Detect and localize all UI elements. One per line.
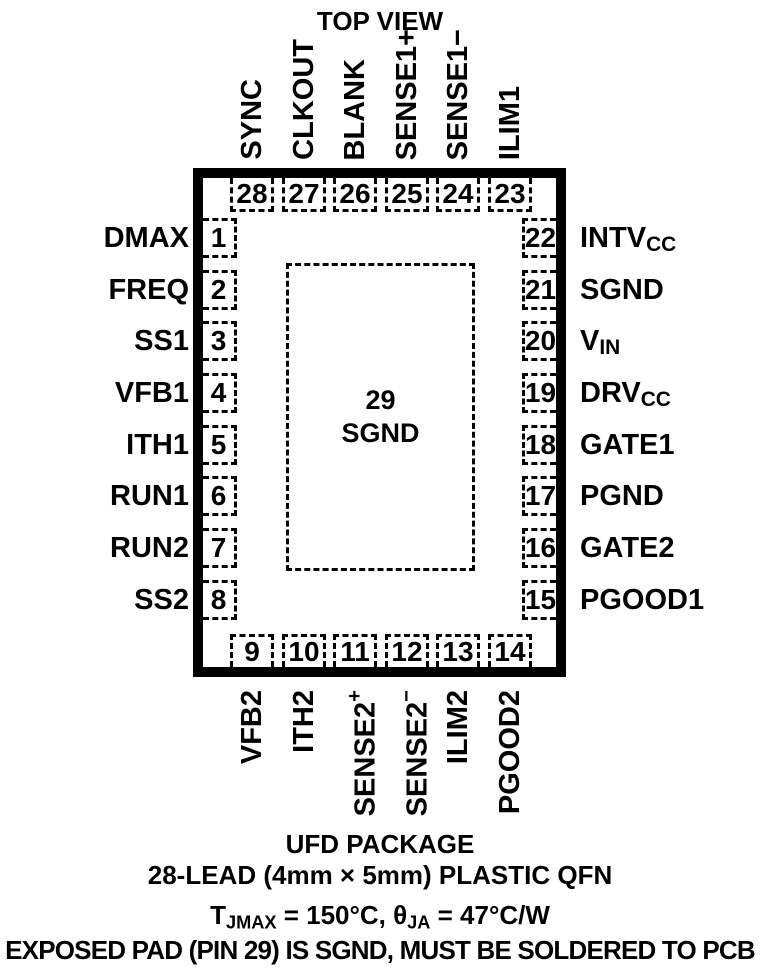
pin-number-24: 24 (442, 178, 473, 210)
pin-label-sync: SYNC (236, 79, 268, 160)
pin-label-intvcc: INTVCC (580, 222, 676, 261)
pin-label-run1-text: RUN1 (110, 480, 189, 512)
pin-box-28: 28 (230, 178, 274, 212)
pin-label-clkout: CLKOUT (288, 39, 320, 160)
pin-label-ith1: ITH1 (0, 429, 189, 461)
footer-thermal-t: T (210, 900, 226, 930)
pin-number-2: 2 (211, 274, 227, 306)
pin-label-ss1-text: SS1 (134, 325, 189, 357)
pin-number-23: 23 (494, 178, 525, 210)
pin-label-sense2p-text: SENSE2 (350, 702, 382, 816)
pin-label-vfb1-text: VFB1 (115, 377, 189, 409)
footer-thermal-tail: = 47°C/W (430, 900, 550, 930)
pin-number-11: 11 (340, 636, 370, 668)
pin-number-14: 14 (494, 636, 525, 668)
pin-box-8: 8 (203, 580, 237, 620)
pin-label-sense1m-text: SENSE1− (442, 29, 474, 160)
pin-number-10: 10 (288, 636, 319, 668)
pin-number-19: 19 (525, 377, 556, 409)
pin-label-ith2-text: ITH2 (288, 690, 320, 753)
footer-thermal-mid: = 150°C, θ (276, 900, 407, 930)
footer-note: EXPOSED PAD (PIN 29) IS SGND, MUST BE SO… (0, 936, 760, 964)
pin-label-drvcc-sub: CC (641, 388, 671, 411)
pin-box-5: 5 (203, 425, 237, 465)
pin-box-19: 19 (522, 373, 556, 413)
pin-number-15: 15 (525, 584, 556, 616)
pin-label-sense1p-text: SENSE1+ (391, 29, 423, 160)
pin-label-blank-text: BLANK (339, 59, 371, 161)
pin-number-22: 22 (525, 222, 556, 254)
pin-label-ss1: SS1 (0, 325, 189, 357)
pin-label-vin-text: V (580, 325, 599, 357)
pin-number-26: 26 (339, 178, 370, 210)
pin-box-16: 16 (522, 528, 556, 568)
pin-number-3: 3 (211, 325, 227, 357)
pin-label-sense2m-text: SENSE2 (402, 702, 434, 816)
pin-label-sense2p: SENSE2+ (339, 690, 371, 816)
pin-box-25: 25 (385, 178, 429, 212)
pin-number-5: 5 (211, 429, 227, 461)
pin-box-4: 4 (203, 373, 237, 413)
pin-label-ith2: ITH2 (288, 690, 320, 753)
pin-label-sense2m: SENSE2− (391, 690, 423, 816)
pin-label-gate2-text: GATE2 (580, 532, 675, 564)
exposed-pad: 29 SGND (286, 263, 475, 571)
pin-label-ilim1: ILIM1 (494, 86, 526, 160)
pin-label-freq-text: FREQ (108, 274, 189, 306)
footer-thermal-t-sub: JMAX (226, 913, 277, 933)
pin-label-run2-text: RUN2 (110, 532, 189, 564)
pin-label-sense1m: SENSE1− (442, 29, 474, 160)
pin-box-11: 11 (333, 634, 377, 667)
pin-box-6: 6 (203, 476, 237, 516)
pin-number-17: 17 (525, 480, 556, 512)
pin-box-21: 21 (522, 270, 556, 310)
pin-number-7: 7 (211, 532, 227, 564)
footer-package-desc: 28-LEAD (4mm × 5mm) PLASTIC QFN (0, 861, 760, 889)
pin-box-7: 7 (203, 528, 237, 568)
pin-label-gate1-text: GATE1 (580, 429, 675, 461)
pin-label-clkout-text: CLKOUT (288, 39, 320, 160)
pin-label-gate1: GATE1 (580, 429, 675, 461)
pin-box-1: 1 (203, 218, 237, 258)
footer-package-name: UFD PACKAGE (0, 830, 760, 858)
pin-label-dmax-text: DMAX (104, 222, 189, 254)
pin-label-vin: VIN (580, 325, 620, 364)
pin-box-13: 13 (436, 634, 480, 667)
pin-number-16: 16 (525, 532, 556, 564)
pin-box-18: 18 (522, 425, 556, 465)
pin-box-10: 10 (282, 634, 326, 667)
pin-label-sense1p: SENSE1+ (391, 29, 423, 160)
pin-label-pgood2: PGOOD2 (494, 690, 526, 814)
pin-label-ss2-text: SS2 (134, 584, 189, 616)
pin-number-21: 21 (525, 274, 556, 306)
pin-number-9: 9 (244, 636, 260, 668)
pin-box-17: 17 (522, 476, 556, 516)
pin-label-freq: FREQ (0, 274, 189, 306)
pin-label-ith1-text: ITH1 (126, 429, 189, 461)
pin-box-23: 23 (488, 178, 532, 212)
pin-label-pgood1-text: PGOOD1 (580, 584, 704, 616)
exposed-pad-number: 29 (365, 384, 395, 417)
pin-label-ilim2: ILIM2 (442, 690, 474, 764)
pin-number-8: 8 (211, 584, 227, 616)
pin-label-vin-sub: IN (599, 336, 620, 359)
pin-box-24: 24 (436, 178, 480, 212)
pin-box-14: 14 (488, 634, 532, 667)
pin-label-sgnd: SGND (580, 274, 664, 306)
footer-thermal: TJMAX = 150°C, θJA = 47°C/W (0, 901, 760, 937)
pin-label-sync-text: SYNC (236, 79, 268, 160)
pin-number-18: 18 (525, 429, 556, 461)
pin-label-sense2p-sup: + (344, 690, 366, 702)
pin-box-9: 9 (230, 634, 274, 667)
pin-number-13: 13 (442, 636, 473, 668)
pin-label-sense2m-sup: − (396, 690, 418, 702)
pin-label-vfb2-text: VFB2 (236, 690, 268, 764)
pin-number-6: 6 (211, 480, 227, 512)
exposed-pad-name: SGND (341, 417, 419, 450)
pin-number-12: 12 (391, 636, 422, 668)
pin-label-vfb1: VFB1 (0, 377, 189, 409)
pin-box-3: 3 (203, 321, 237, 361)
pin-number-1: 1 (211, 222, 227, 254)
pin-box-2: 2 (203, 270, 237, 310)
pin-box-22: 22 (522, 218, 556, 258)
pin-label-gate2: GATE2 (580, 532, 675, 564)
pin-label-pgnd: PGND (580, 480, 664, 512)
pin-label-ss2: SS2 (0, 584, 189, 616)
diagram-title: TOP VIEW (0, 6, 760, 37)
pin-label-blank: BLANK (339, 59, 371, 161)
pin-number-4: 4 (211, 377, 227, 409)
pin-number-28: 28 (236, 178, 267, 210)
pin-number-20: 20 (525, 325, 556, 357)
pin-label-intvcc-sub: CC (646, 233, 676, 256)
pin-label-pgood1: PGOOD1 (580, 584, 704, 616)
pin-label-pgnd-text: PGND (580, 480, 664, 512)
footer-thermal-theta-sub: JA (407, 913, 430, 933)
pin-box-20: 20 (522, 321, 556, 361)
pin-label-vfb2: VFB2 (236, 690, 268, 764)
pin-label-dmax: DMAX (0, 222, 189, 254)
pin-label-ilim2-text: ILIM2 (442, 690, 474, 764)
pin-box-26: 26 (333, 178, 377, 212)
pin-box-12: 12 (385, 634, 429, 667)
pin-box-15: 15 (522, 580, 556, 620)
pin-label-sgnd-text: SGND (580, 274, 664, 306)
pin-label-pgood2-text: PGOOD2 (494, 690, 526, 814)
pin-label-drvcc: DRVCC (580, 377, 671, 416)
pin-number-27: 27 (288, 178, 319, 210)
pin-box-27: 27 (282, 178, 326, 212)
pin-label-drvcc-text: DRV (580, 377, 641, 409)
pin-label-intvcc-text: INTV (580, 222, 646, 254)
pin-label-run1: RUN1 (0, 480, 189, 512)
pin-number-25: 25 (391, 178, 422, 210)
pinout-diagram: TOP VIEW 29 SGND 28 27 26 25 24 23 9 10 … (0, 0, 760, 970)
pin-label-ilim1-text: ILIM1 (494, 86, 526, 160)
pin-label-run2: RUN2 (0, 532, 189, 564)
